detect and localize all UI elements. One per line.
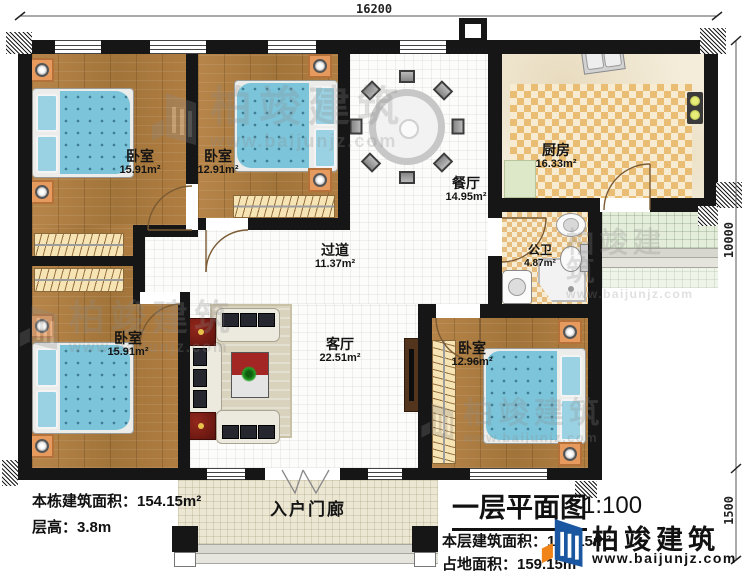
axis-marker (6, 32, 32, 54)
wall (18, 40, 718, 54)
pillow (314, 128, 336, 168)
porch-step-2 (178, 553, 438, 564)
cushion (240, 425, 257, 439)
nightstand (30, 434, 54, 458)
bed-tm (234, 80, 338, 172)
sink-bowl (563, 218, 579, 232)
door-opening (186, 184, 198, 230)
cushion (258, 313, 275, 327)
wall (338, 40, 350, 218)
cushion (193, 390, 207, 408)
door-opening (206, 218, 248, 230)
nightstand (30, 314, 54, 338)
washing-machine (502, 270, 532, 304)
window (470, 468, 547, 480)
window (55, 40, 101, 54)
porch-column-base (174, 552, 196, 567)
lamp-icon (35, 185, 49, 199)
window (207, 468, 245, 480)
dim-tick (712, 12, 722, 20)
dining-chair (452, 119, 465, 135)
wardrobe (34, 268, 124, 292)
drain-icon (568, 286, 574, 292)
cushion (193, 348, 207, 366)
toilet-bowl (560, 246, 582, 272)
brand-logo-icon (540, 516, 588, 570)
door-opening (488, 218, 502, 256)
dim-height-porch: 1500 (722, 496, 736, 525)
window (400, 40, 446, 54)
dim-width-top: 16200 (356, 2, 392, 16)
kitchen-counter (504, 160, 536, 198)
nightstand (30, 58, 54, 82)
room-label-kitchen: 厨房 16.33m² (536, 142, 577, 171)
cushion (222, 425, 239, 439)
lamp-icon (313, 59, 327, 73)
entrance-opening (265, 468, 340, 480)
washer-door-icon (508, 278, 526, 296)
nightstand (308, 54, 332, 78)
dim-height-main: 10000 (722, 222, 736, 258)
room-label-bedroom-bl: 卧室 15.91m² (108, 330, 149, 359)
dim-tick (731, 464, 741, 473)
bath-sink (556, 213, 586, 237)
floor-plan-canvas: 16200 10000 1500 卧室 15.91m² 卧室 12.91m² 餐… (0, 0, 750, 581)
cushion (240, 313, 257, 327)
table-center (399, 119, 419, 139)
wall (178, 292, 190, 480)
porch-column-base (414, 552, 436, 567)
window (150, 40, 206, 54)
nightstand (558, 320, 582, 344)
wardrobe (34, 233, 124, 257)
axis-marker (700, 28, 726, 54)
wardrobe (233, 195, 335, 218)
pillow (36, 135, 58, 173)
nightstand (30, 180, 54, 204)
side-table (186, 412, 216, 440)
room-label-dining: 餐厅 14.95m² (446, 175, 487, 204)
tv-screen (409, 349, 414, 401)
bed-br (483, 348, 586, 444)
lamp-icon (563, 447, 577, 461)
building-area-text: 本栋建筑面积：154.15m² (32, 490, 201, 511)
wall (18, 256, 145, 266)
door-opening (436, 304, 480, 318)
burner-icon (690, 96, 700, 106)
lamp-icon (198, 329, 204, 335)
wall (488, 54, 502, 212)
room-label-corridor: 过道 11.37m² (315, 242, 355, 271)
patio-step-2 (602, 257, 718, 268)
room-label-bedroom-tl: 卧室 15.91m² (120, 148, 161, 177)
chimney (459, 18, 487, 44)
plant-icon (241, 366, 257, 382)
room-label-living: 客厅 22.51m² (320, 336, 361, 365)
lamp-icon (35, 319, 49, 333)
cushion (222, 313, 239, 327)
porch-column (412, 526, 438, 552)
blanket (486, 351, 557, 440)
brand-url: www.baijunjz.com (592, 550, 737, 566)
lamp-icon (35, 439, 49, 453)
blanket (237, 83, 309, 168)
lamp-icon (563, 325, 577, 339)
pillow (36, 390, 58, 429)
wall (418, 304, 432, 480)
axis-marker (716, 182, 742, 208)
dining-table (369, 89, 445, 165)
room-label-bedroom-br: 卧室 12.96m² (452, 340, 493, 369)
lamp-icon (198, 423, 204, 429)
pillow (36, 94, 58, 132)
lamp-icon (35, 63, 49, 77)
cushion (193, 369, 207, 387)
door-opening (140, 292, 180, 304)
stove (687, 92, 703, 124)
dining-chair (350, 119, 363, 135)
window (368, 468, 402, 480)
wall (588, 212, 602, 480)
side-table (186, 318, 216, 346)
dim-tick (731, 36, 741, 45)
dining-chair (399, 171, 415, 184)
pillow (36, 348, 58, 387)
door-opening (600, 198, 650, 212)
kitchen-checker-floor (510, 84, 692, 198)
dim-tick (15, 12, 25, 20)
room-label-bedroom-tm: 卧室 12.91m² (198, 148, 239, 177)
nightstand (558, 442, 582, 466)
plan-scale: 1:100 (582, 492, 642, 520)
burner-icon (690, 110, 700, 120)
sofa-bottom (216, 410, 280, 444)
pillow (314, 86, 336, 126)
sofa-left (188, 342, 222, 414)
pillow (560, 355, 582, 397)
pillow (560, 399, 582, 441)
room-label-porch: 入户门廊 (270, 500, 346, 520)
lamp-icon (313, 173, 327, 187)
sofa-top (216, 308, 280, 342)
window (268, 40, 316, 54)
room-label-bathroom: 公卫 4.87m² (524, 244, 556, 269)
axis-marker (2, 460, 18, 486)
nightstand (308, 168, 332, 192)
floor-height-text: 层高：3.8m (32, 516, 111, 537)
dining-chair (399, 70, 415, 83)
axis-marker (698, 206, 718, 226)
patio-lawn (602, 266, 718, 288)
porch-column (172, 526, 198, 552)
cushion (258, 425, 275, 439)
